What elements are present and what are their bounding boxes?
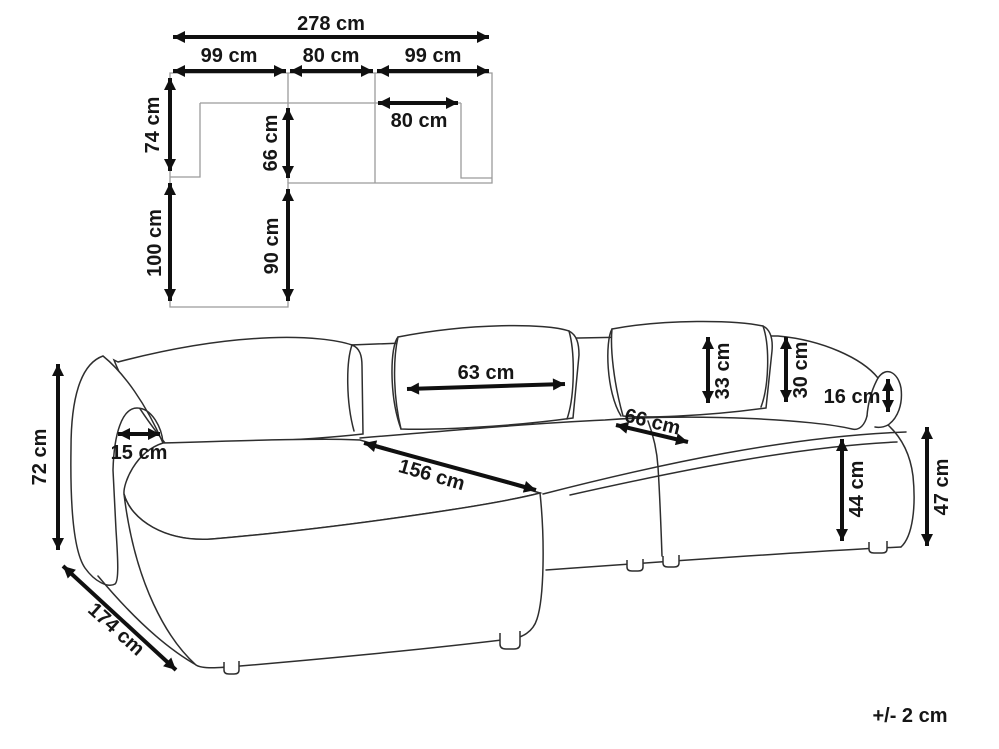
label-armrest-top-width: 15 cm (111, 442, 168, 464)
label-armrest-rise: 16 cm (824, 386, 881, 408)
label-backrest-height: 30 cm (790, 342, 812, 399)
label-back-cushion-width: 63 cm (458, 362, 515, 384)
label-back-depth: 74 cm (142, 97, 164, 154)
back-pillow-right (611, 321, 772, 416)
label-middle-module: 80 cm (303, 45, 360, 67)
sofa-dimension-diagram: 278 cm 99 cm 80 cm 99 cm 80 cm 74 cm 66 … (0, 0, 999, 749)
tolerance-note: +/- 2 cm (872, 705, 947, 727)
sofa-leg (500, 631, 520, 649)
label-chaise-extension: 100 cm (144, 209, 166, 277)
sofa-leg (869, 541, 887, 553)
sofa-leg (627, 559, 643, 571)
label-inner-seat-depth: 66 cm (260, 115, 282, 172)
label-inner-seat-width: 80 cm (391, 110, 448, 132)
top-view-left-armrest-inner (170, 103, 200, 177)
label-total-depth: 174 cm (83, 599, 148, 661)
label-back-cushion-height: 33 cm (712, 343, 734, 400)
sofa-perspective-drawing: 72 cm 174 cm 15 cm 63 cm 156 cm 66 cm 33… (29, 321, 953, 674)
diagram-canvas: 278 cm 99 cm 80 cm 99 cm 80 cm 74 cm 66 … (0, 0, 999, 749)
label-armrest-height: 47 cm (931, 459, 953, 516)
label-chaise-inner: 90 cm (261, 218, 283, 275)
label-total-width: 278 cm (297, 13, 365, 35)
top-view-outline (170, 73, 492, 307)
sofa-leg (224, 661, 239, 674)
top-view-right-armrest-inner (461, 103, 492, 178)
label-left-module: 99 cm (201, 45, 258, 67)
label-right-module: 99 cm (405, 45, 462, 67)
top-view-schematic: 278 cm 99 cm 80 cm 99 cm 80 cm 74 cm 66 … (142, 13, 492, 307)
sofa-leg (663, 555, 679, 567)
label-back-height: 72 cm (29, 429, 51, 486)
back-pillow-left (114, 337, 363, 443)
label-front-seat-height: 44 cm (846, 461, 868, 518)
